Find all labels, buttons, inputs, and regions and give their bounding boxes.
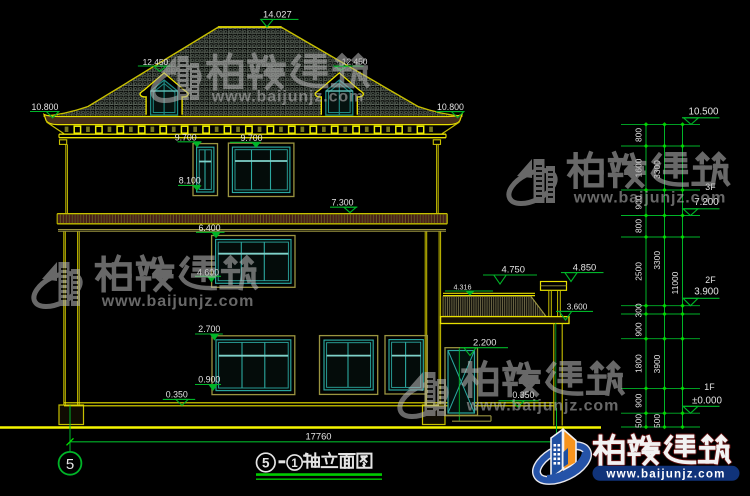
svg-text:10.500: 10.500 bbox=[689, 106, 720, 117]
svg-text:5: 5 bbox=[66, 456, 74, 473]
svg-text:1F: 1F bbox=[704, 382, 715, 392]
svg-text:7.300: 7.300 bbox=[332, 197, 354, 207]
svg-text:4.316: 4.316 bbox=[454, 282, 472, 291]
svg-text:10.800: 10.800 bbox=[32, 102, 59, 112]
svg-text:3300: 3300 bbox=[652, 251, 662, 270]
svg-text:www.baijunjz.com: www.baijunjz.com bbox=[466, 398, 620, 415]
svg-text:3.900: 3.900 bbox=[694, 287, 719, 298]
svg-text:2F: 2F bbox=[705, 275, 716, 285]
svg-text:4.850: 4.850 bbox=[573, 261, 596, 272]
svg-text:±0.000: ±0.000 bbox=[692, 395, 722, 406]
svg-text:4.750: 4.750 bbox=[502, 263, 525, 274]
svg-text:500: 500 bbox=[652, 414, 662, 428]
svg-text:9.700: 9.700 bbox=[175, 133, 197, 143]
svg-text:3.600: 3.600 bbox=[567, 302, 588, 311]
svg-text:9.700: 9.700 bbox=[241, 133, 263, 143]
svg-text:2.200: 2.200 bbox=[473, 337, 496, 348]
svg-text:800: 800 bbox=[634, 128, 644, 142]
svg-text:800: 800 bbox=[634, 219, 644, 233]
svg-text:300: 300 bbox=[634, 303, 644, 317]
svg-text:8.100: 8.100 bbox=[179, 176, 201, 186]
svg-text:14.027: 14.027 bbox=[263, 9, 292, 20]
svg-text:5: 5 bbox=[262, 455, 270, 470]
svg-text:0.900: 0.900 bbox=[198, 375, 220, 385]
svg-text:10.800: 10.800 bbox=[437, 102, 464, 112]
svg-text:500: 500 bbox=[634, 414, 644, 428]
svg-text:6.400: 6.400 bbox=[199, 223, 221, 233]
svg-text:11000: 11000 bbox=[670, 271, 680, 294]
svg-text:www.baijunjz.com: www.baijunjz.com bbox=[573, 190, 727, 207]
svg-text:www.baijunjz.com: www.baijunjz.com bbox=[101, 293, 255, 310]
svg-text:2.700: 2.700 bbox=[198, 324, 220, 334]
svg-text:3900: 3900 bbox=[652, 354, 662, 373]
svg-text:www.baijunjz.com: www.baijunjz.com bbox=[605, 468, 725, 481]
svg-text:1800: 1800 bbox=[634, 354, 644, 373]
svg-text:900: 900 bbox=[634, 393, 644, 407]
svg-text:0.350: 0.350 bbox=[166, 389, 188, 399]
svg-text:1: 1 bbox=[291, 458, 298, 470]
svg-text:2500: 2500 bbox=[634, 262, 644, 281]
svg-text:900: 900 bbox=[634, 322, 644, 336]
svg-text:17760: 17760 bbox=[305, 430, 331, 441]
svg-text:www.baijunjz.com: www.baijunjz.com bbox=[211, 89, 365, 106]
